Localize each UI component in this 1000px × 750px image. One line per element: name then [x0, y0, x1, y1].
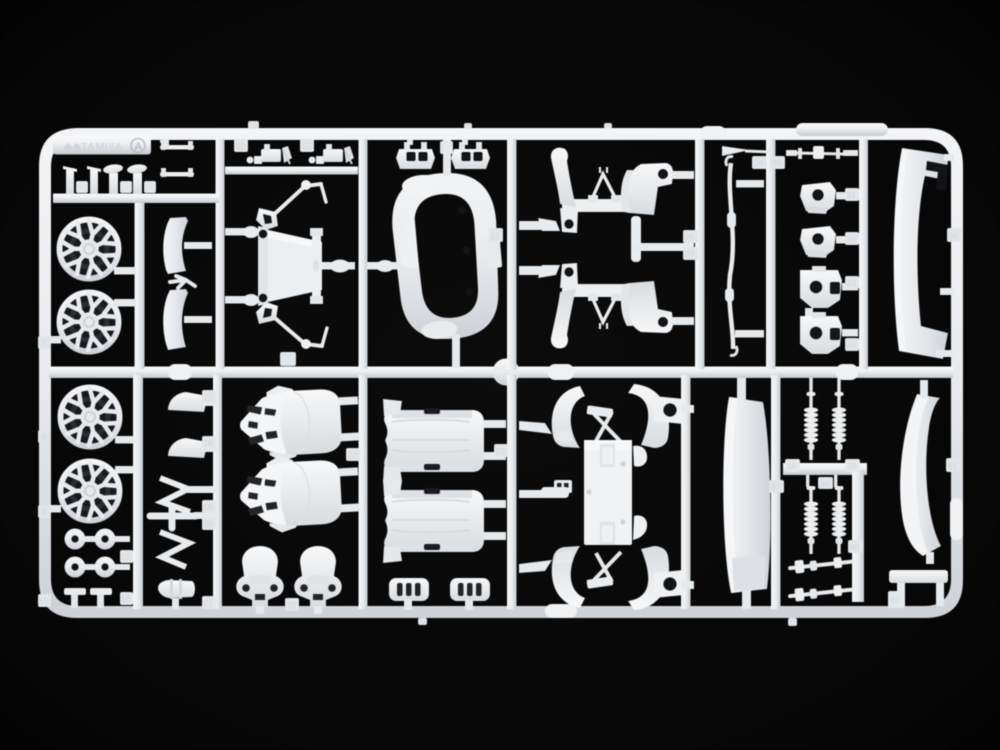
svg-text:37: 37	[771, 482, 781, 492]
svg-text:22: 22	[348, 450, 358, 460]
svg-text:40: 40	[850, 542, 860, 552]
svg-text:12: 12	[491, 231, 501, 241]
svg-text:16: 16	[121, 594, 131, 604]
svg-text:◆◆TAMIYA: ◆◆TAMIYA	[63, 141, 123, 153]
svg-text:39: 39	[847, 461, 857, 471]
svg-text:17: 17	[204, 392, 214, 402]
svg-text:12: 12	[121, 552, 131, 562]
svg-text:30: 30	[772, 158, 782, 168]
svg-text:10: 10	[302, 141, 312, 151]
svg-text:34: 34	[847, 340, 857, 350]
svg-text:10: 10	[236, 141, 246, 151]
svg-text:21: 21	[204, 598, 214, 608]
svg-text:7: 7	[42, 338, 47, 348]
svg-text:6: 6	[42, 432, 47, 442]
svg-text:33: 33	[847, 278, 857, 288]
svg-text:26: 26	[685, 232, 695, 242]
svg-text:15: 15	[39, 596, 49, 606]
svg-text:23: 23	[496, 446, 506, 456]
svg-text:27: 27	[685, 249, 695, 259]
svg-text:38: 38	[787, 461, 797, 471]
svg-text:20: 20	[204, 519, 214, 529]
svg-text:18: 18	[204, 438, 214, 448]
svg-text:29: 29	[754, 158, 764, 168]
svg-text:31: 31	[847, 190, 857, 200]
svg-text:42: 42	[890, 595, 900, 605]
svg-text:5: 5	[42, 507, 47, 517]
svg-text:41: 41	[948, 461, 958, 471]
svg-text:25: 25	[287, 600, 297, 610]
svg-text:32: 32	[847, 234, 857, 244]
svg-text:35: 35	[820, 479, 830, 489]
svg-text:19: 19	[204, 502, 214, 512]
svg-text:A: A	[135, 141, 143, 153]
svg-text:35: 35	[949, 231, 959, 241]
